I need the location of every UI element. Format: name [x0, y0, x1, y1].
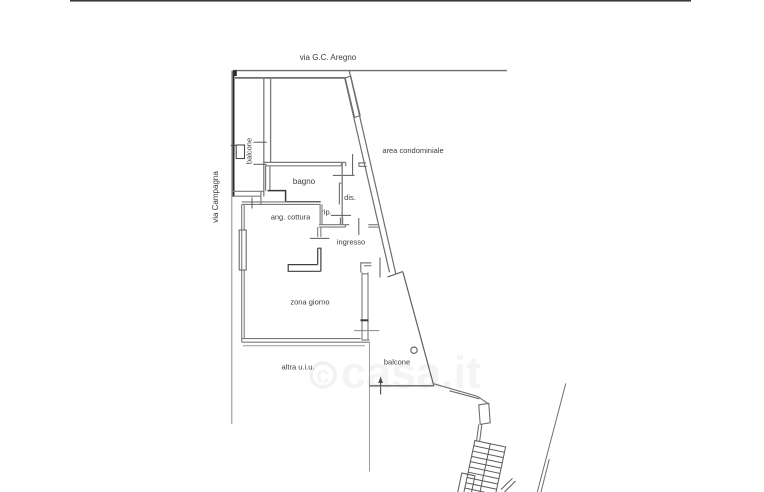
- svg-text:via Campagna: via Campagna: [211, 171, 220, 223]
- svg-text:rip.: rip.: [321, 208, 331, 217]
- svg-text:altra u.i.u.: altra u.i.u.: [282, 363, 315, 372]
- svg-text:casa.it: casa.it: [341, 347, 481, 398]
- svg-text:via G.C. Aregno: via G.C. Aregno: [300, 53, 357, 62]
- svg-text:c: c: [316, 362, 329, 389]
- svg-text:ang. cottura: ang. cottura: [271, 213, 311, 222]
- svg-text:balcone: balcone: [384, 358, 410, 367]
- svg-text:zona giorno: zona giorno: [290, 298, 329, 307]
- svg-text:dis.: dis.: [344, 193, 356, 202]
- svg-text:bagno: bagno: [293, 177, 316, 186]
- svg-text:ingresso: ingresso: [337, 238, 365, 247]
- svg-text:balcone: balcone: [245, 138, 254, 164]
- svg-text:area condominiale: area condominiale: [382, 146, 443, 155]
